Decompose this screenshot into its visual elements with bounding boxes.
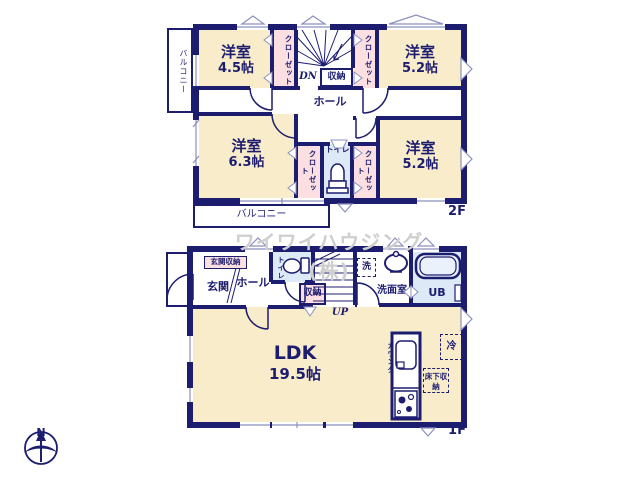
floorplan-page: バルコニー 洋室 4.5帖 洋室 5.2帖 洋室 6.3帖 洋室 5.2帖 クロ… xyxy=(0,0,640,480)
interior-walls-2f xyxy=(199,30,461,198)
toilet-icon-2f xyxy=(327,164,348,193)
watermark: ワイワイハウジング(株) xyxy=(222,226,436,284)
compass-icon: N xyxy=(24,426,58,464)
kitchen-unit-icon xyxy=(392,333,420,419)
stairs-2f-icon xyxy=(296,30,352,66)
